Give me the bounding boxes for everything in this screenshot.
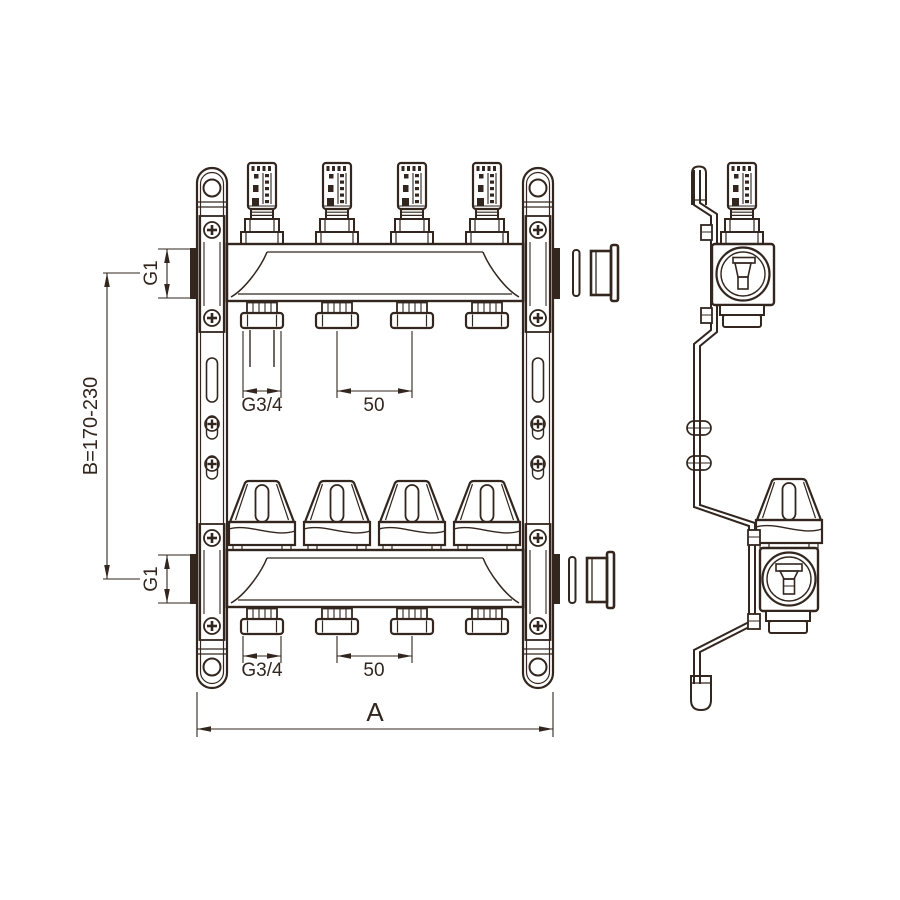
valve-cap-2 bbox=[304, 481, 370, 550]
dimension-g34-top: G3/4 bbox=[241, 331, 283, 416]
label-spacing-top: 50 bbox=[363, 395, 384, 416]
side-valve-cap bbox=[756, 479, 822, 548]
valve-cap-4 bbox=[454, 481, 520, 550]
side-flow-meter bbox=[721, 163, 763, 244]
dimension-g1-top: G1 bbox=[141, 249, 192, 298]
outlet-union-bottom-2 bbox=[316, 609, 358, 635]
dimension-height: B=170-230 bbox=[80, 273, 140, 579]
outlet-union-top-4 bbox=[466, 303, 508, 329]
mounting-bracket-right bbox=[523, 168, 553, 688]
valve-cap-1 bbox=[229, 481, 295, 550]
flow-meter-1 bbox=[241, 163, 283, 244]
dimension-g1-bottom: G1 bbox=[141, 555, 192, 603]
side-view bbox=[687, 163, 822, 710]
front-view bbox=[190, 163, 560, 688]
outlet-union-bottom-3 bbox=[391, 609, 433, 635]
technical-drawing: G1 G1 B=170-230 G3/4 bbox=[0, 0, 900, 900]
mounting-bracket-left bbox=[197, 168, 227, 688]
label-g1-top: G1 bbox=[141, 260, 162, 285]
return-manifold-bar bbox=[227, 550, 523, 607]
label-g34-top: G3/4 bbox=[241, 395, 283, 416]
label-height-range: B=170-230 bbox=[80, 377, 102, 475]
outlet-union-bottom-4 bbox=[466, 609, 508, 635]
outlet-tailpiece bbox=[250, 330, 274, 367]
label-g34-bottom: G3/4 bbox=[241, 660, 283, 681]
label-overall-width: A bbox=[366, 697, 384, 727]
flow-meter-2 bbox=[316, 163, 358, 244]
outlet-union-top-3 bbox=[391, 303, 433, 329]
flow-meter-3 bbox=[391, 163, 433, 244]
flow-meter-4 bbox=[466, 163, 508, 244]
label-g1-bottom: G1 bbox=[141, 566, 162, 591]
side-supply-manifold bbox=[701, 163, 774, 327]
dimension-width: A bbox=[197, 692, 553, 737]
valve-cap-3 bbox=[379, 481, 445, 550]
side-return-manifold bbox=[748, 479, 822, 633]
end-cap-gasket-bottom bbox=[569, 552, 614, 608]
end-cap-gasket-top bbox=[573, 245, 618, 301]
outlet-union-top-2 bbox=[316, 303, 358, 329]
dimension-spacing-top: 50 bbox=[337, 331, 412, 416]
manifold-drawing-canvas: G1 G1 B=170-230 G3/4 bbox=[0, 0, 900, 900]
dimension-spacing-bottom: 50 bbox=[337, 636, 412, 681]
supply-manifold-bar bbox=[227, 244, 523, 301]
dimension-g34-bottom: G3/4 bbox=[241, 636, 283, 681]
label-spacing-bottom: 50 bbox=[363, 660, 384, 681]
outlet-union-top-1 bbox=[241, 303, 283, 329]
outlet-union-bottom-1 bbox=[241, 609, 283, 635]
